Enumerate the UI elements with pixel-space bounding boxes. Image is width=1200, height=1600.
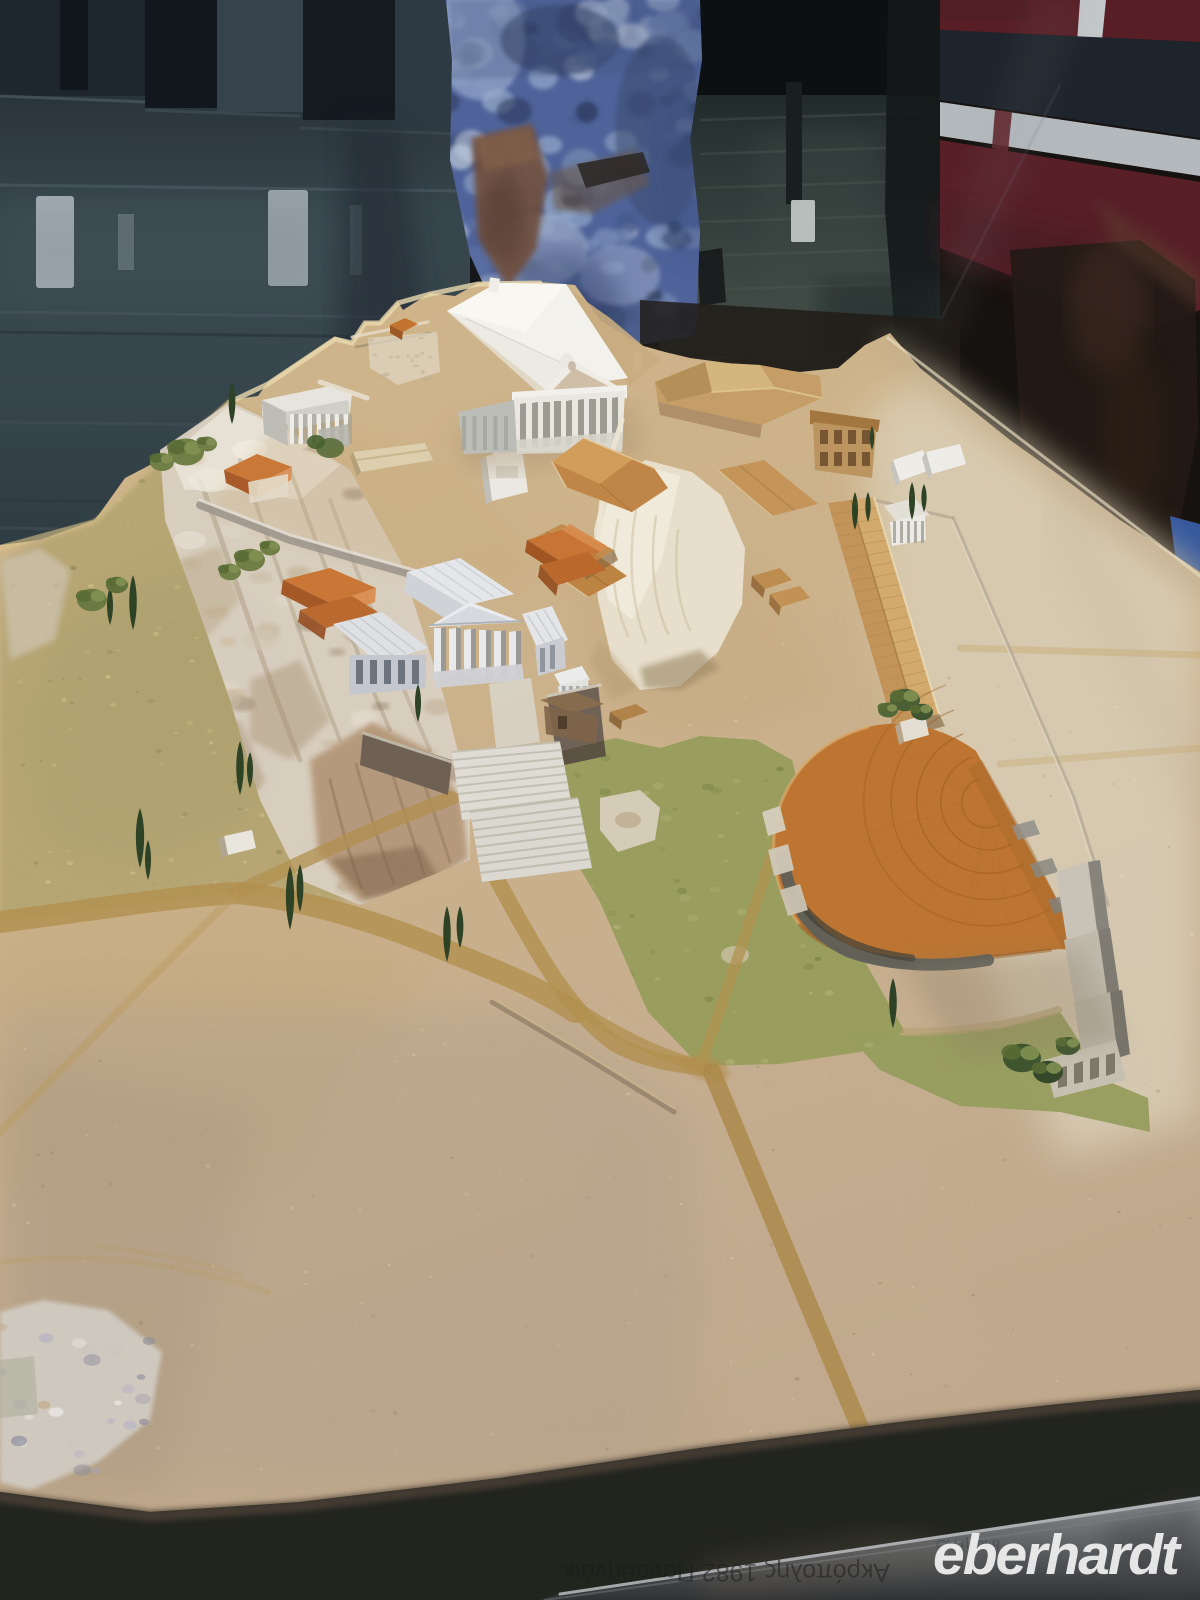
svg-text:Ακρόπολης 1982 Παναθηνάικ: Ακρόπολης 1982 Παναθηνάικ: [562, 1558, 890, 1586]
svg-text:eberhardt: eberhardt: [933, 1523, 1182, 1587]
